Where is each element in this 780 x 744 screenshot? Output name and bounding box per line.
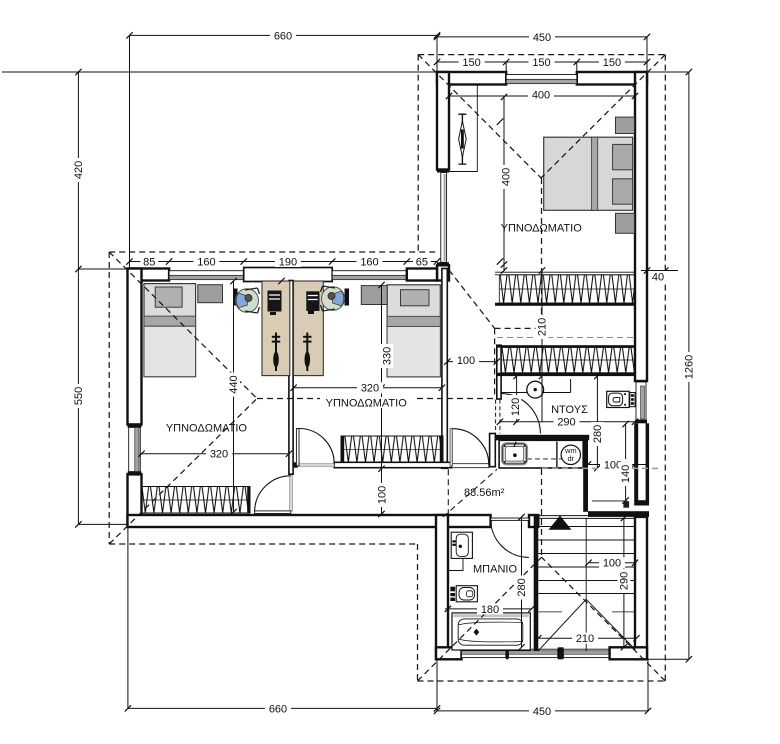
svg-text:190: 190	[279, 256, 297, 268]
svg-text:dr: dr	[567, 454, 574, 463]
svg-text:290: 290	[557, 417, 575, 429]
svg-text:660: 660	[269, 703, 287, 715]
svg-text:ΥΠΝΟΔΩΜΑΤΙΟ: ΥΠΝΟΔΩΜΑΤΙΟ	[166, 422, 248, 434]
svg-text:320: 320	[361, 383, 379, 395]
svg-text:180: 180	[481, 604, 499, 616]
svg-text:65: 65	[416, 256, 428, 268]
svg-text:210: 210	[537, 318, 549, 336]
svg-text:450: 450	[533, 32, 551, 44]
svg-text:280: 280	[592, 425, 604, 443]
svg-text:150: 150	[532, 57, 550, 69]
svg-text:440: 440	[228, 375, 240, 393]
svg-text:160: 160	[360, 256, 378, 268]
svg-text:330: 330	[381, 347, 393, 365]
svg-text:ΥΠΝΟΔΩΜΑΤΙΟ: ΥΠΝΟΔΩΜΑΤΙΟ	[501, 222, 583, 234]
svg-text:100: 100	[457, 355, 475, 367]
svg-text:150: 150	[603, 57, 621, 69]
svg-text:280: 280	[516, 578, 528, 596]
svg-text:ΝΤΟΥΣ: ΝΤΟΥΣ	[551, 404, 588, 416]
svg-text:420: 420	[73, 161, 85, 179]
svg-text:160: 160	[197, 256, 215, 268]
svg-text:660: 660	[274, 30, 292, 42]
svg-text:320: 320	[210, 449, 228, 461]
svg-text:85: 85	[143, 256, 155, 268]
svg-text:ΜΠΑΝΙΟ: ΜΠΑΝΙΟ	[473, 563, 517, 575]
svg-text:120: 120	[510, 398, 522, 416]
svg-text:100: 100	[377, 486, 389, 504]
svg-text:88.56m²: 88.56m²	[464, 487, 505, 499]
svg-text:550: 550	[73, 387, 85, 405]
svg-text:290: 290	[619, 572, 631, 590]
svg-text:140: 140	[620, 465, 632, 483]
svg-text:210: 210	[576, 633, 594, 645]
svg-text:ΥΠΝΟΔΩΜΑΤΙΟ: ΥΠΝΟΔΩΜΑΤΙΟ	[326, 397, 408, 409]
svg-text:1260: 1260	[684, 355, 696, 379]
svg-text:100: 100	[603, 558, 621, 570]
svg-text:400: 400	[532, 89, 550, 101]
svg-text:40: 40	[652, 271, 664, 283]
svg-text:400: 400	[501, 168, 513, 186]
svg-text:150: 150	[462, 57, 480, 69]
svg-text:450: 450	[533, 706, 551, 718]
